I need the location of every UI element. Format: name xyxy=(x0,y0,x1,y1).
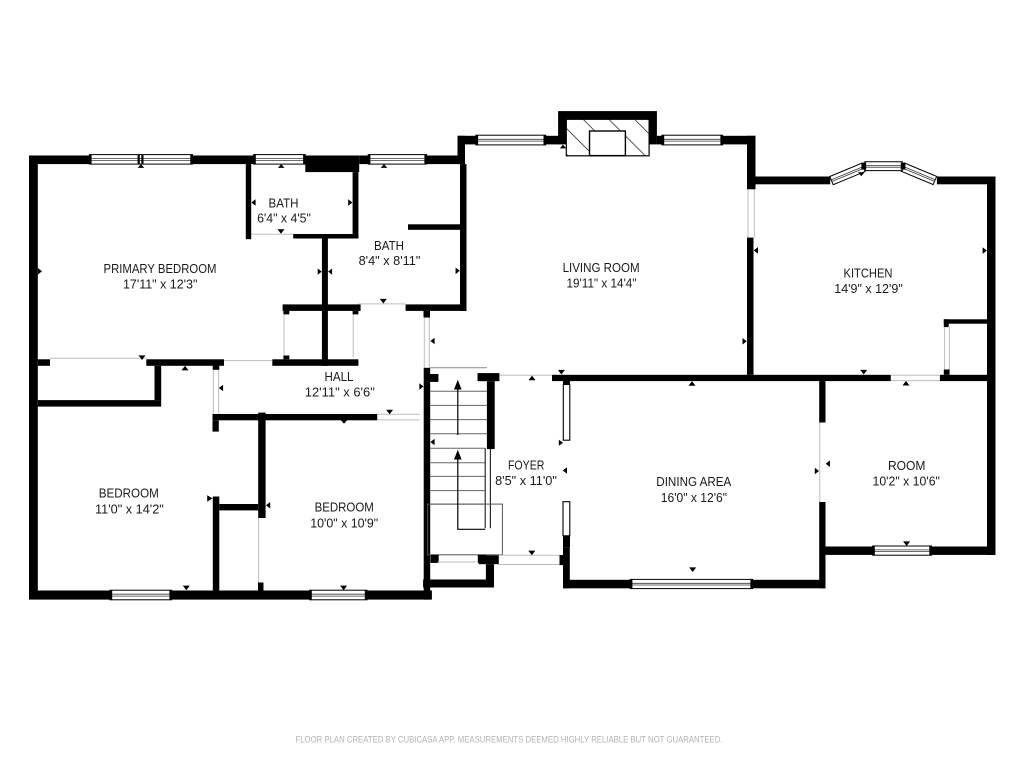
svg-text:10'0" x 10'9": 10'0" x 10'9" xyxy=(310,515,378,530)
svg-text:BEDROOM: BEDROOM xyxy=(315,500,374,515)
svg-text:HALL: HALL xyxy=(325,369,354,384)
svg-text:14'9" x 12'9": 14'9" x 12'9" xyxy=(834,281,903,296)
svg-text:BATH: BATH xyxy=(269,195,299,210)
svg-text:8'4" x 8'11": 8'4" x 8'11" xyxy=(359,253,421,268)
svg-text:LIVING ROOM: LIVING ROOM xyxy=(563,260,640,275)
svg-text:6'4" x 4'5": 6'4" x 4'5" xyxy=(257,211,311,226)
svg-text:BATH: BATH xyxy=(374,238,404,253)
svg-text:17'11" x 12'3": 17'11" x 12'3" xyxy=(123,277,198,292)
svg-text:10'2" x 10'6": 10'2" x 10'6" xyxy=(873,474,941,489)
svg-text:12'11" x 6'6": 12'11" x 6'6" xyxy=(305,385,375,400)
svg-text:19'11" x 14'4": 19'11" x 14'4" xyxy=(567,276,637,291)
svg-text:FOYER: FOYER xyxy=(508,457,545,472)
svg-text:16'0" x 12'6": 16'0" x 12'6" xyxy=(661,490,728,505)
svg-text:11'0" x 14'2": 11'0" x 14'2" xyxy=(95,501,164,516)
svg-text:BEDROOM: BEDROOM xyxy=(99,486,159,501)
svg-text:KITCHEN: KITCHEN xyxy=(844,265,893,280)
svg-text:ROOM: ROOM xyxy=(888,458,926,473)
svg-text:FLOOR PLAN CREATED BY CUBICASA: FLOOR PLAN CREATED BY CUBICASA APP. MEAS… xyxy=(296,735,723,745)
svg-text:DINING AREA: DINING AREA xyxy=(656,474,731,489)
svg-text:PRIMARY BEDROOM: PRIMARY BEDROOM xyxy=(104,261,217,276)
svg-text:8'5" x 11'0": 8'5" x 11'0" xyxy=(495,473,557,488)
